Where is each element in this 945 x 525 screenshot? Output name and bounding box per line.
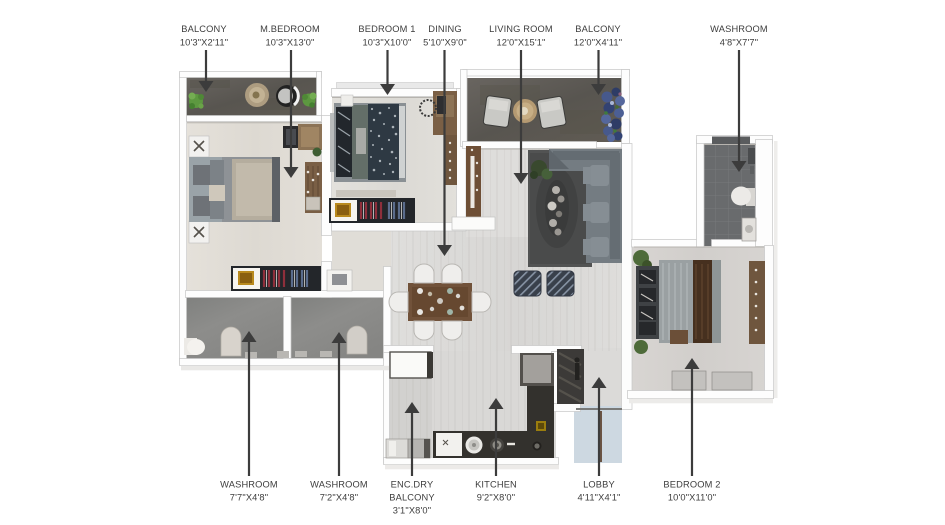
svg-text:BALCONY: BALCONY	[181, 24, 226, 34]
svg-text:7'7"X4'8": 7'7"X4'8"	[230, 493, 268, 503]
svg-text:WASHROOM: WASHROOM	[310, 480, 368, 490]
svg-text:3'1"X8'0": 3'1"X8'0"	[393, 506, 431, 516]
svg-text:10'0"X11'0": 10'0"X11'0"	[668, 493, 716, 503]
svg-text:4'8"X7'7": 4'8"X7'7"	[720, 38, 758, 48]
svg-text:ENC.DRY: ENC.DRY	[391, 480, 434, 490]
svg-text:BALCONY: BALCONY	[389, 493, 434, 503]
svg-text:9'2"X8'0": 9'2"X8'0"	[477, 493, 515, 503]
svg-text:BALCONY: BALCONY	[575, 24, 620, 34]
svg-text:BEDROOM 2: BEDROOM 2	[663, 480, 720, 490]
svg-text:WASHROOM: WASHROOM	[710, 24, 768, 34]
svg-text:BEDROOM 1: BEDROOM 1	[358, 24, 415, 34]
svg-text:5'10"X9'0": 5'10"X9'0"	[423, 38, 467, 48]
svg-text:4'11"X4'1": 4'11"X4'1"	[577, 493, 620, 503]
svg-text:DINING: DINING	[428, 24, 461, 34]
svg-text:KITCHEN: KITCHEN	[475, 480, 517, 490]
svg-text:10'3"X2'11": 10'3"X2'11"	[180, 38, 228, 48]
svg-text:WASHROOM: WASHROOM	[220, 480, 278, 490]
svg-text:7'2"X4'8": 7'2"X4'8"	[320, 493, 358, 503]
svg-text:12'0"X15'1": 12'0"X15'1"	[496, 38, 545, 48]
svg-text:M.BEDROOM: M.BEDROOM	[260, 24, 320, 34]
svg-text:LIVING ROOM: LIVING ROOM	[489, 24, 553, 34]
svg-text:12'0"X4'11": 12'0"X4'11"	[574, 38, 622, 48]
svg-text:10'3"X10'0": 10'3"X10'0"	[362, 38, 411, 48]
svg-text:LOBBY: LOBBY	[583, 480, 615, 490]
svg-text:10'3"X13'0": 10'3"X13'0"	[265, 38, 314, 48]
